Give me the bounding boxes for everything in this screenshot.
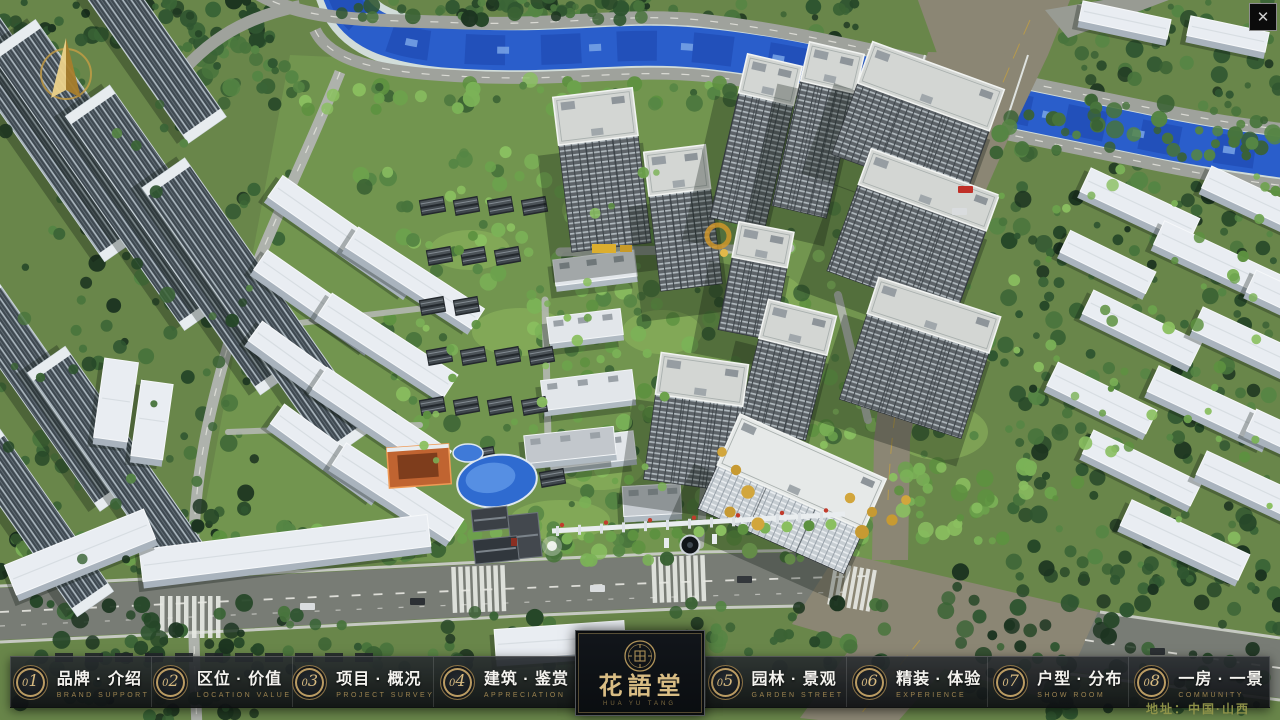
nav-item-label: 品牌 · 介绍 (57, 665, 142, 689)
compass-icon (34, 34, 98, 106)
nav-item-label: 一房 · 一景 (1178, 665, 1263, 689)
presentation-window: ✕ 01 品牌 · 介绍 BRAND SUPPORT 02 区位 · 价值 LO… (0, 0, 1280, 720)
nav-item-number-badge: 06 (852, 665, 887, 700)
nav-item-sublabel: BRAND SUPPORT (57, 692, 150, 699)
nav-item-sublabel: SHOW ROOM (1037, 692, 1105, 699)
nav-item-number-badge: 08 (1134, 665, 1169, 700)
nav-item-number: 04 (449, 673, 466, 689)
nav-item-brand[interactable]: 01 品牌 · 介绍 BRAND SUPPORT (10, 657, 151, 707)
project-logo-name: 花語堂 (594, 675, 686, 699)
nav-item-label: 项目 · 概况 (336, 665, 421, 689)
nav-item-number-badge: 05 (708, 665, 743, 700)
nav-item-label: 区位 · 价值 (197, 665, 282, 689)
nav-item-sublabel: GARDEN STREET (752, 692, 844, 699)
masterplan-render (0, 0, 1280, 720)
nav-item-label: 建筑 · 鉴赏 (484, 665, 569, 689)
nav-item-sublabel: LOCATION VALUE (197, 692, 292, 699)
project-logo[interactable]: 花語堂 HUA YU TANG (575, 630, 705, 716)
close-icon: ✕ (1257, 8, 1270, 26)
nav-item-decoration[interactable]: 06 精装 · 体验 EXPERIENCE (846, 657, 987, 707)
nav-item-sublabel: APPRECIATION (484, 692, 566, 699)
nav-item-label: 园林 · 景观 (752, 665, 837, 689)
bottom-nav: 01 品牌 · 介绍 BRAND SUPPORT 02 区位 · 价值 LOCA… (10, 656, 1270, 708)
project-logo-caption: HUA YU TANG (603, 701, 676, 707)
nav-item-project[interactable]: 03 项目 · 概况 PROJECT SURVEY (292, 657, 433, 707)
nav-item-number: 08 (1144, 673, 1161, 689)
seal-emblem-icon (623, 639, 657, 673)
nav-item-number: 01 (22, 673, 39, 689)
nav-item-sublabel: PROJECT SURVEY (336, 692, 434, 699)
nav-item-number-badge: 03 (292, 665, 327, 700)
nav-item-number: 07 (1002, 673, 1019, 689)
nav-item-number: 05 (717, 673, 734, 689)
nav-item-location[interactable]: 02 区位 · 价值 LOCATION VALUE (151, 657, 292, 707)
nav-item-garden[interactable]: 05 园林 · 景观 GARDEN STREET (705, 657, 846, 707)
nav-item-number-badge: 07 (993, 665, 1028, 700)
project-address: 地址：中国·山西 (1146, 700, 1250, 717)
nav-item-number: 03 (301, 673, 318, 689)
nav-item-architecture[interactable]: 04 建筑 · 鉴赏 APPRECIATION (433, 657, 574, 707)
nav-item-label: 精装 · 体验 (896, 665, 981, 689)
nav-item-sublabel: COMMUNITY (1178, 692, 1244, 699)
nav-item-number-badge: 01 (13, 665, 48, 700)
nav-item-number: 02 (162, 673, 179, 689)
nav-item-number: 06 (861, 673, 878, 689)
nav-item-floorplan[interactable]: 07 户型 · 分布 SHOW ROOM (987, 657, 1128, 707)
nav-item-number-badge: 04 (440, 665, 475, 700)
nav-item-sublabel: EXPERIENCE (896, 692, 966, 699)
nav-item-label: 户型 · 分布 (1037, 665, 1122, 689)
close-button[interactable]: ✕ (1249, 3, 1277, 31)
nav-item-number-badge: 02 (153, 665, 188, 700)
